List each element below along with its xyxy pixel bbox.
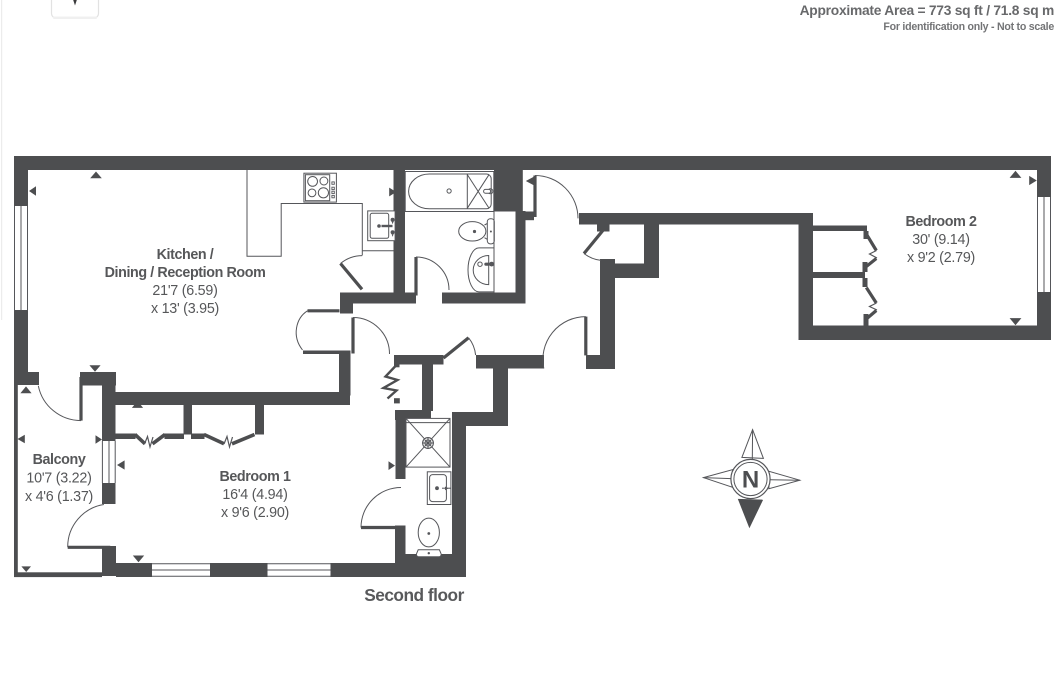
svg-text:For identification only - Not: For identification only - Not to scale [883, 21, 1054, 33]
svg-text:10'7 (3.22): 10'7 (3.22) [26, 471, 91, 487]
svg-text:30' (9.14): 30' (9.14) [912, 232, 969, 248]
svg-text:Bedroom 2: Bedroom 2 [905, 214, 977, 230]
svg-text:16'4 (4.94): 16'4 (4.94) [222, 487, 287, 503]
svg-text:Second floor: Second floor [364, 585, 464, 605]
svg-text:N: N [742, 467, 759, 494]
svg-text:21'7 (6.59): 21'7 (6.59) [152, 283, 217, 299]
svg-text:Kitchen /: Kitchen / [157, 247, 214, 263]
svg-text:x 13' (3.95): x 13' (3.95) [151, 301, 219, 317]
svg-text:Dining / Reception Room: Dining / Reception Room [105, 265, 266, 281]
svg-text:x 9'6 (2.90): x 9'6 (2.90) [221, 505, 289, 521]
svg-text:x 9'2 (2.79): x 9'2 (2.79) [907, 250, 975, 266]
svg-text:Bedroom 1: Bedroom 1 [219, 469, 291, 485]
svg-text:x 4'6 (1.37): x 4'6 (1.37) [25, 489, 93, 505]
svg-text:Approximate Area = 773 sq ft /: Approximate Area = 773 sq ft / 71.8 sq m [800, 3, 1054, 18]
svg-text:Balcony: Balcony [33, 452, 86, 468]
